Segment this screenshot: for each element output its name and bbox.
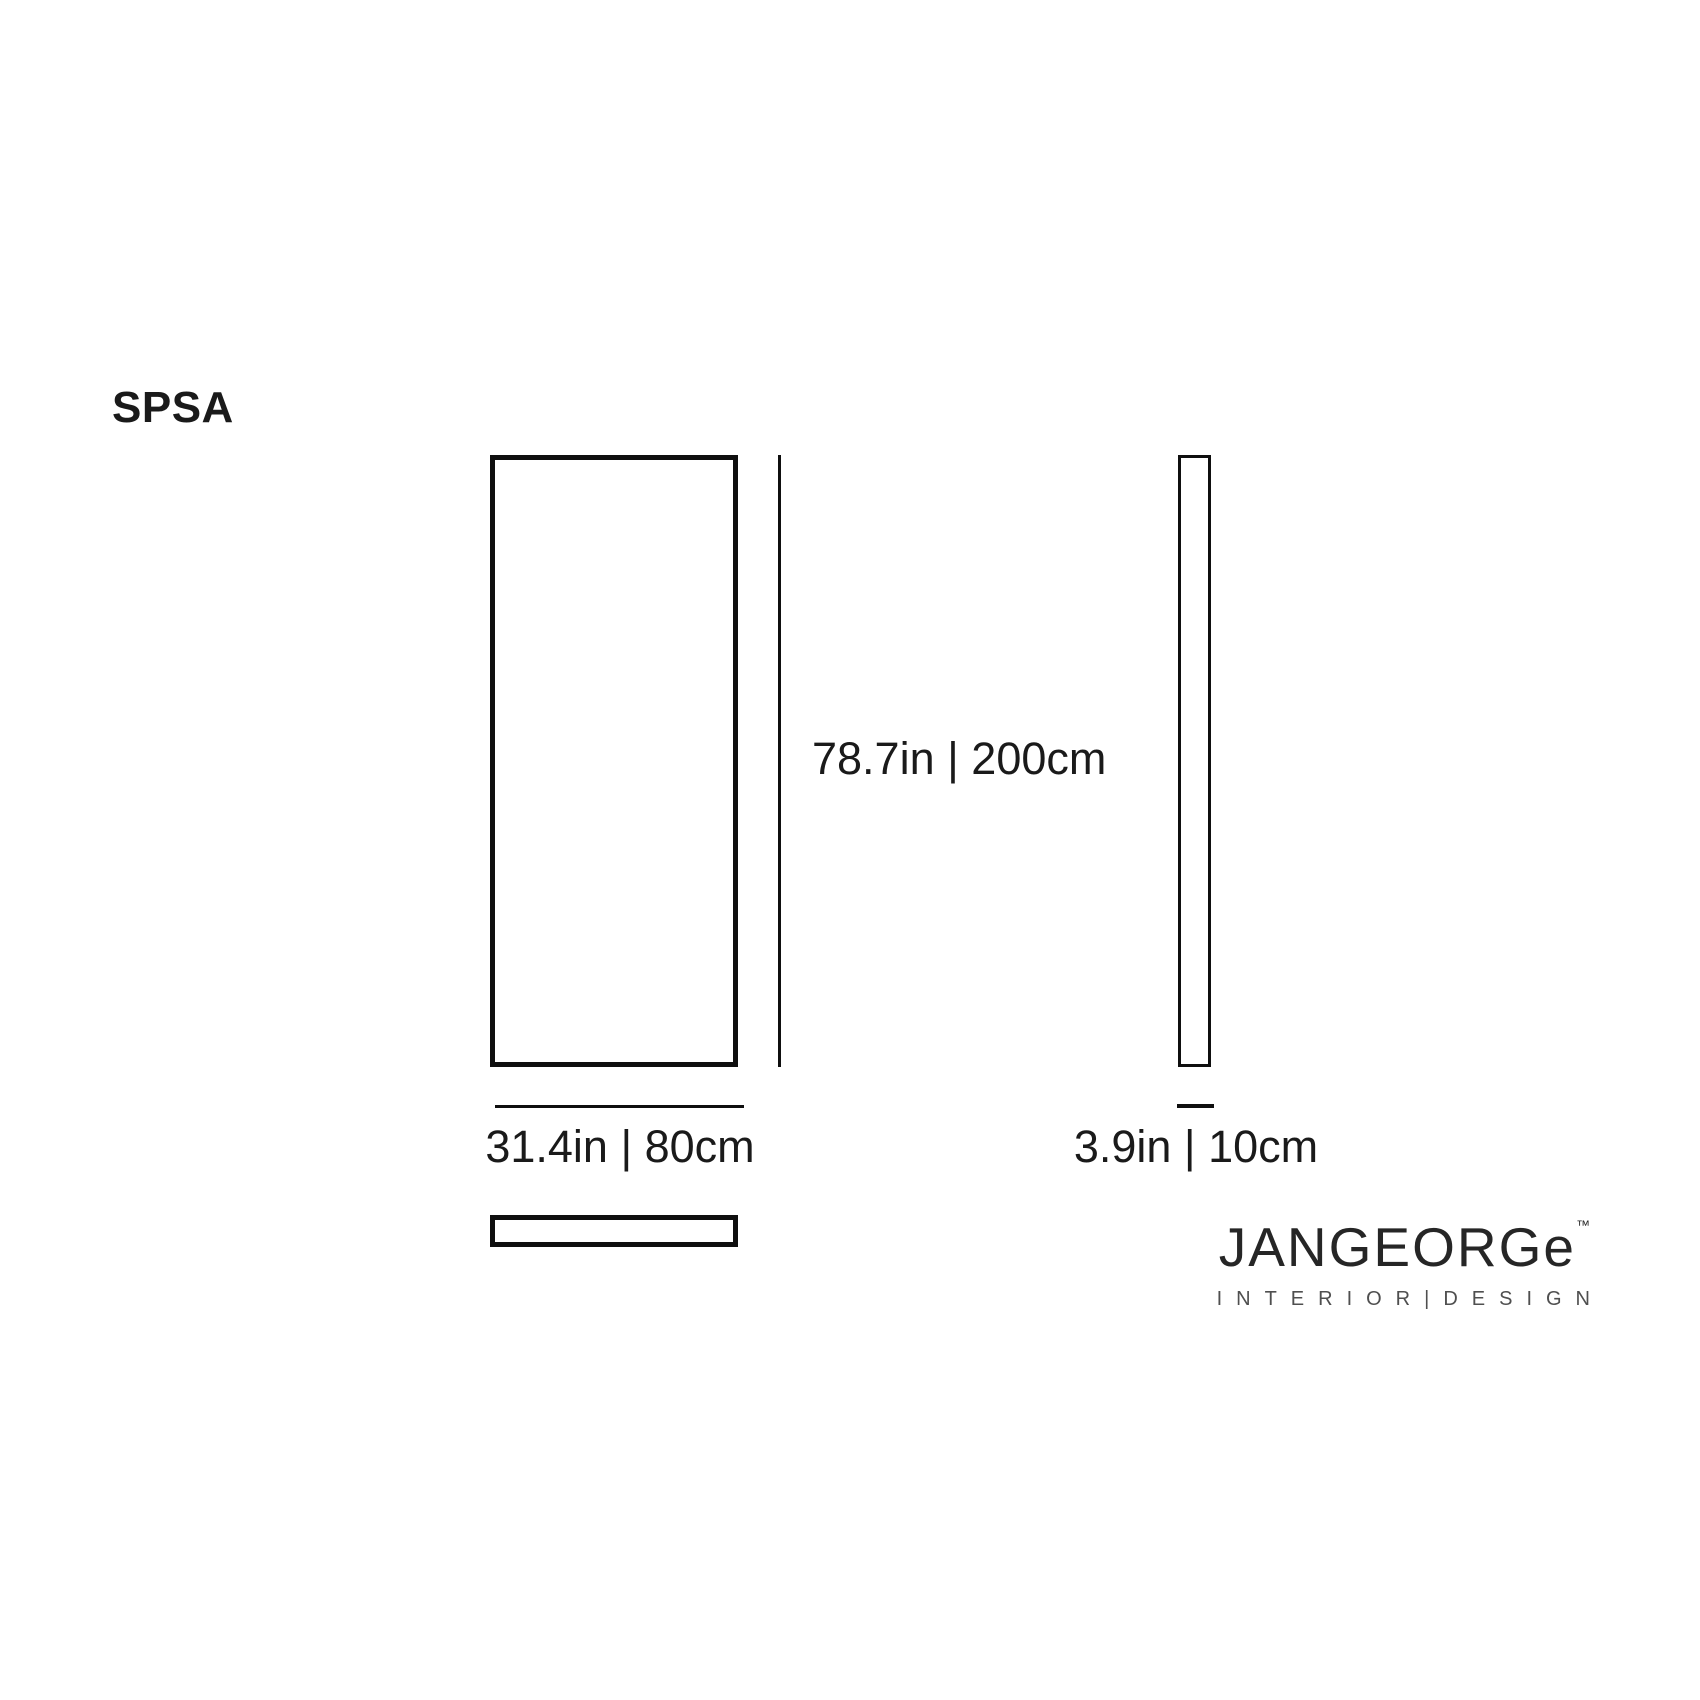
- product-code-label: SPSA: [112, 386, 234, 430]
- depth-dimension-label: 3.9in | 10cm: [1074, 1124, 1318, 1169]
- trademark-symbol: ™: [1576, 1217, 1590, 1233]
- brand-logo: JANGEORGe™ INTERIOR|DESIGN: [1217, 1218, 1590, 1311]
- height-dimension-line: [778, 455, 781, 1067]
- brand-name-row: JANGEORGe™: [1217, 1218, 1590, 1275]
- depth-dimension-line: [1177, 1104, 1214, 1108]
- width-dimension-line: [495, 1105, 744, 1108]
- top-view-outline: [490, 1215, 738, 1247]
- height-dimension-label: 78.7in | 200cm: [812, 736, 1106, 781]
- spec-diagram-canvas: SPSA 78.7in | 200cm 31.4in | 80cm 3.9in …: [0, 0, 1700, 1700]
- brand-name: JANGEORGe: [1219, 1216, 1576, 1278]
- brand-tagline: INTERIOR|DESIGN: [1217, 1288, 1604, 1311]
- width-dimension-label: 31.4in | 80cm: [485, 1124, 754, 1169]
- side-view-outline: [1178, 455, 1211, 1067]
- front-view-outline: [490, 455, 738, 1067]
